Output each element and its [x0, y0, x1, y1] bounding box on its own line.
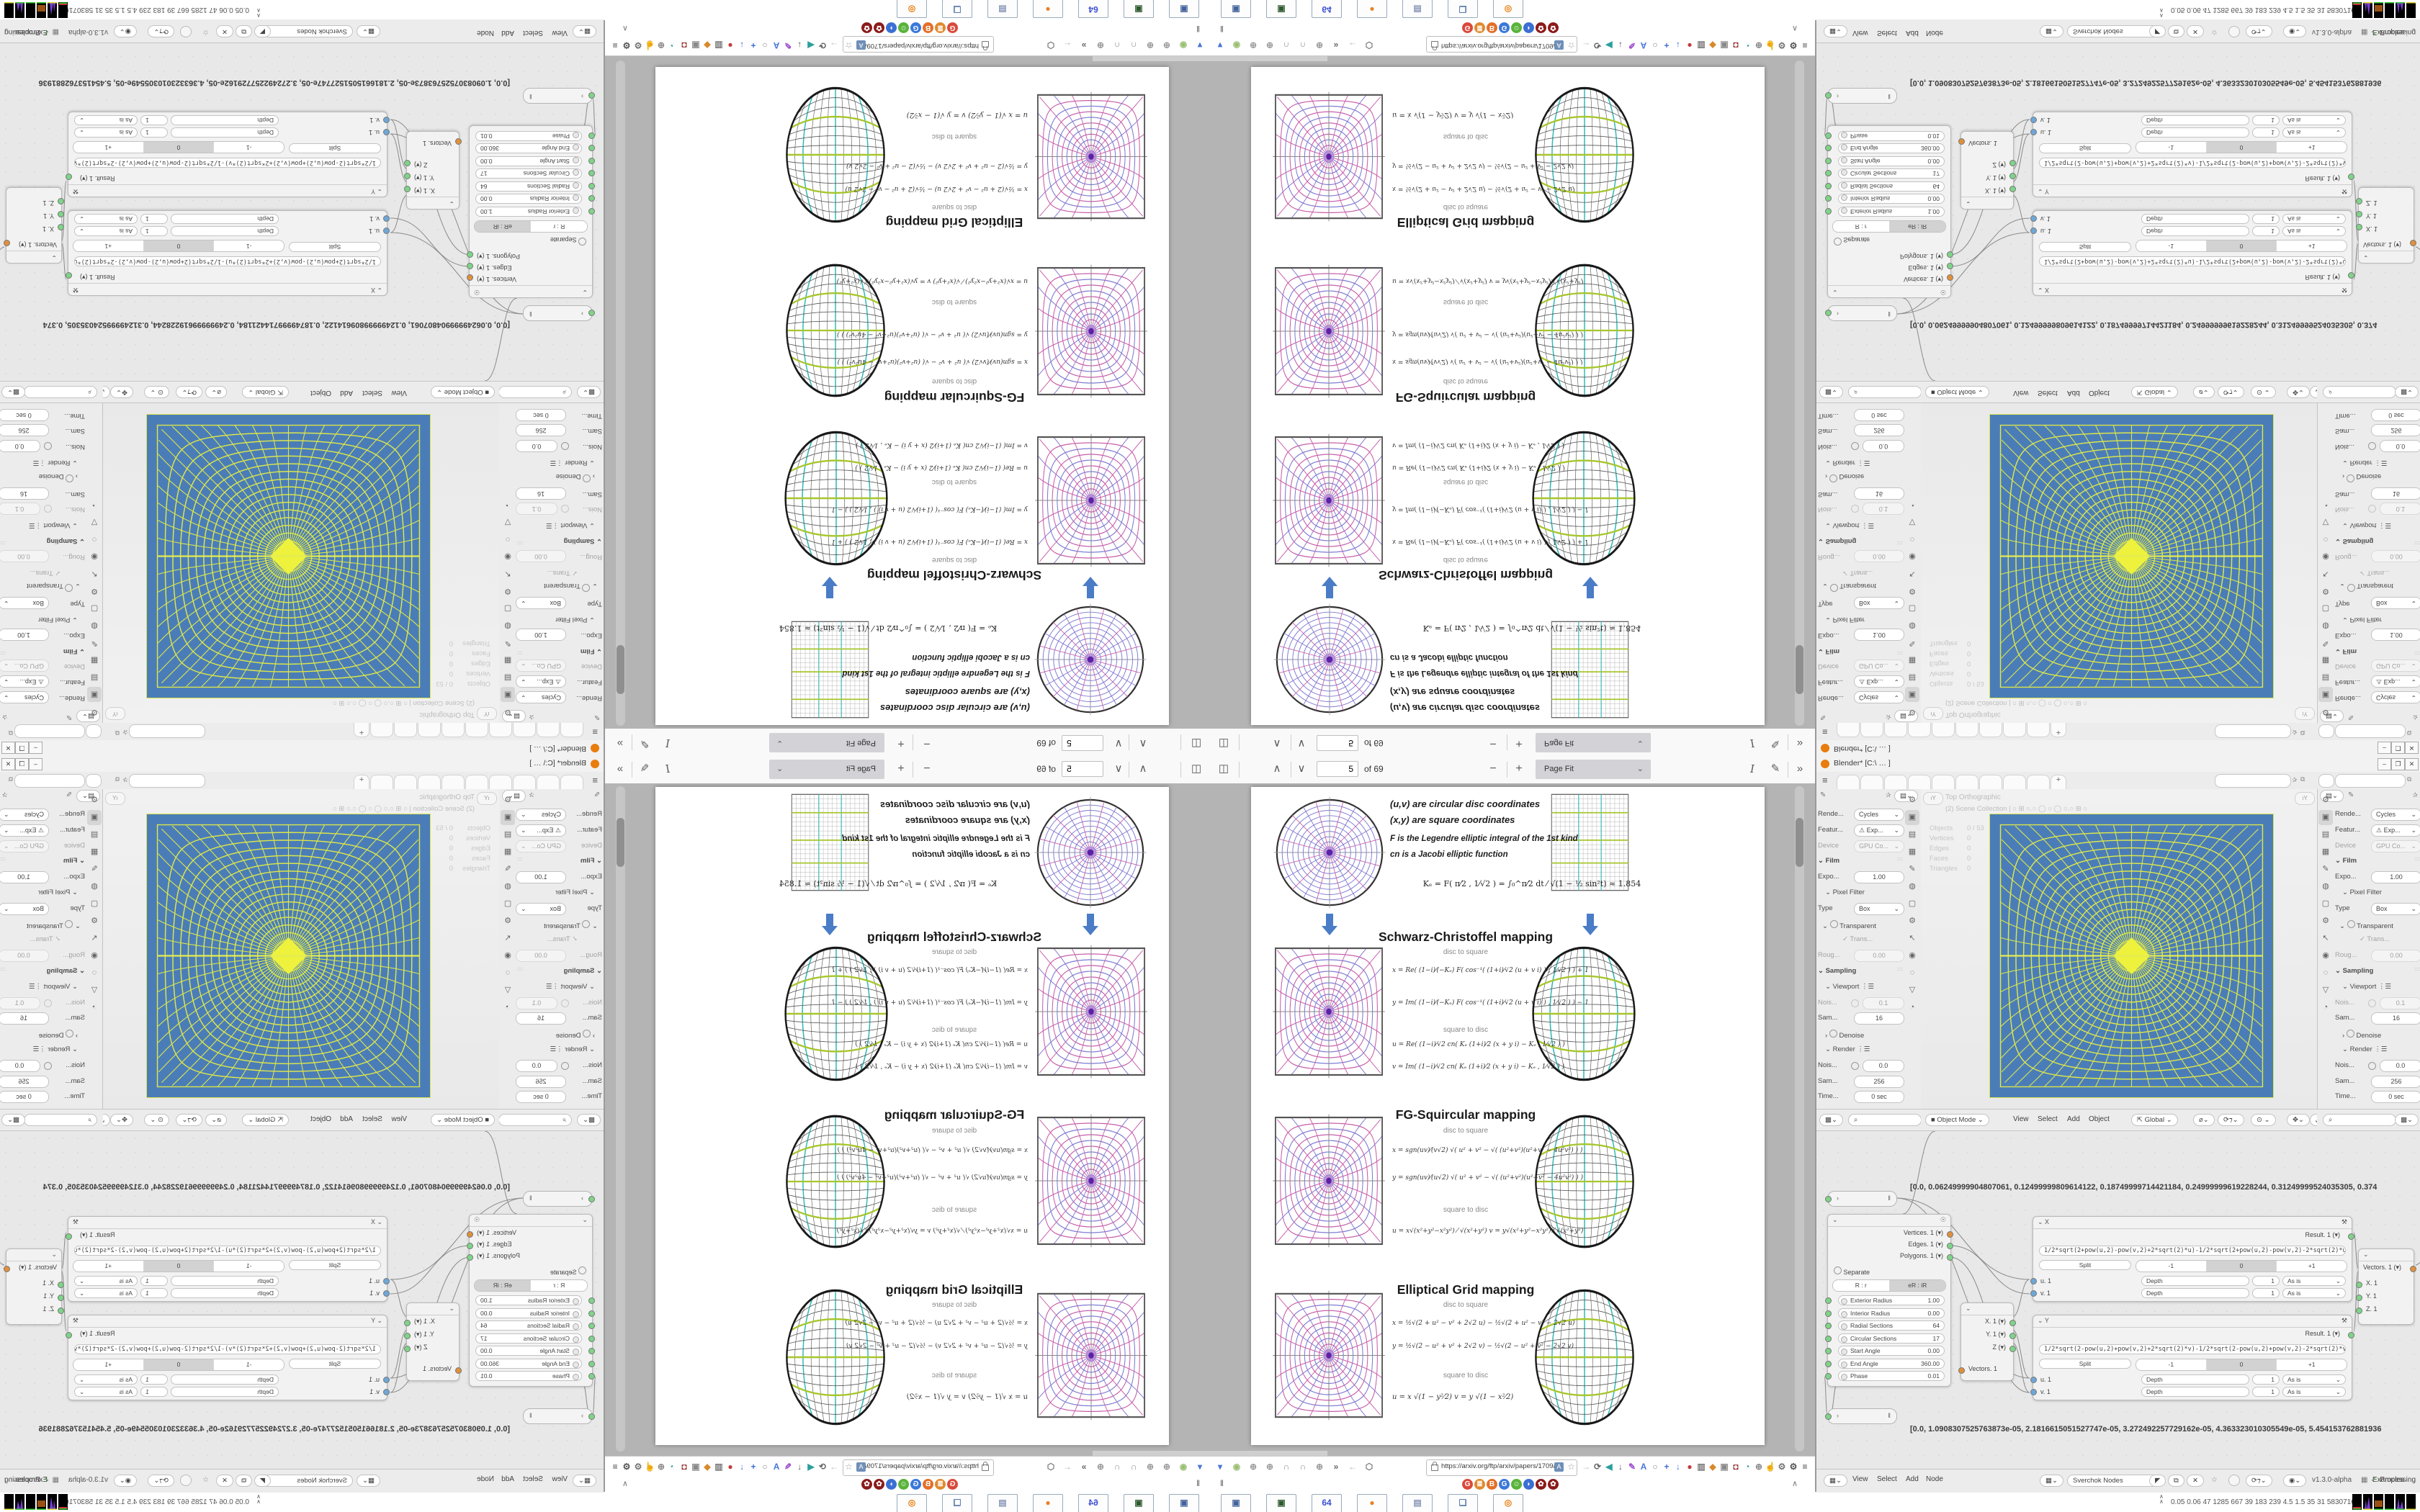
props-row-film[interactable]: ⌄ Film::::	[2335, 855, 2420, 869]
props-row-featur[interactable]: Featur...⚠ Exp... ⌄	[516, 824, 602, 838]
depth-slider[interactable]: Depth	[2141, 226, 2249, 236]
properties-tab-icon[interactable]: ✎	[87, 635, 102, 650]
props-row-featur[interactable]: Featur...⚠ Exp... ⌄	[2335, 824, 2420, 838]
formula-input[interactable]: 1/2*sqrt(2-pow(u,2)+pow(v,2)+2*sqrt(2)*v…	[2039, 1344, 2346, 1354]
props-row-device[interactable]: DeviceGPU Co... ⌄	[0, 658, 85, 672]
value-field[interactable]: 1	[2252, 214, 2280, 224]
param-slider[interactable]: Phase0.01	[475, 1371, 582, 1381]
sverchok-node-editor[interactable]: [0.0, 0.06249999904807061, 0.12499999809…	[1816, 42, 2420, 382]
props-row-denoise[interactable]: › Denoise	[2335, 1027, 2420, 1042]
properties-tab-icon[interactable]: ◔	[2318, 1000, 2333, 1015]
taskbar-app-icon[interactable]: ●	[1033, 0, 1063, 18]
wrap-option[interactable]: -1	[214, 1359, 284, 1370]
props-row-device[interactable]: DeviceGPU Co... ⌄	[1818, 840, 1904, 854]
bookmark-icon[interactable]: ✿	[861, 22, 872, 33]
menu-select[interactable]: Select	[1877, 1475, 1897, 1483]
mode-dropdown[interactable]: ■ Object Mode ⌄	[1925, 1114, 1989, 1126]
taskbar-app-icon[interactable]: 64	[1312, 0, 1342, 18]
props-row-rende[interactable]: Rende...Cycles ⌄	[1818, 808, 1904, 822]
editor-type-dropdown[interactable]: ▩⌄	[1819, 1114, 1843, 1126]
page-number-input[interactable]	[1317, 735, 1358, 751]
props-row-sam[interactable]: Sam...16	[0, 1012, 85, 1026]
toolbar-icon[interactable]: ⊕	[1312, 38, 1327, 53]
param-slider[interactable]: Start Angle0.00	[475, 156, 582, 166]
props-row-pixelfilter[interactable]: ⌄ Pixel Filter	[1818, 886, 1904, 901]
snap-dropdown[interactable]: ⟳⁊⌄	[148, 25, 174, 37]
value-field[interactable]: 1	[140, 127, 168, 138]
props-row-time[interactable]: Time...0 sec	[0, 408, 85, 422]
wrap-option[interactable]: 0	[2206, 142, 2277, 153]
props-row-type[interactable]: TypeBox ⌄	[1818, 595, 1904, 610]
bookmark-icon[interactable]: ◗	[1523, 1479, 1534, 1490]
props-row-roug[interactable]: Roug...0.00	[1818, 949, 1904, 963]
page-down-button[interactable]: ∨	[1292, 761, 1311, 778]
menu-icon[interactable]: ≡	[1822, 726, 1828, 737]
pin-icon[interactable]: ✰	[122, 728, 128, 736]
editor-type-dropdown[interactable]: ▩⌄	[2395, 1114, 2419, 1126]
toolbar-icon[interactable]: ∩	[1296, 1459, 1310, 1474]
props-row-sam[interactable]: Sam...16	[2335, 1012, 2420, 1026]
props-row-pixelfilter[interactable]: ⌄ Pixel Filter	[2335, 886, 2420, 901]
properties-tab-icon[interactable]: ◍	[501, 618, 515, 633]
wrap-option[interactable]: -1	[2136, 1359, 2206, 1370]
formula-input[interactable]: 1/2*sqrt(2+pow(u,2)-pow(v,2)+2*sqrt(2)*u…	[2039, 256, 2346, 266]
mode-option[interactable]: eR : iR	[1889, 221, 1946, 232]
toolbar-icon[interactable]: ∩	[1279, 1459, 1294, 1474]
props-row-sam[interactable]: Sam...16	[2335, 486, 2420, 500]
split-button[interactable]: Split	[289, 242, 381, 252]
taskbar-app-icon[interactable]: ◎	[897, 1494, 927, 1512]
props-row-device[interactable]: DeviceGPU Co... ⌄	[2335, 658, 2420, 672]
parent-tree-button[interactable]	[2228, 26, 2240, 37]
taskbar-app-icon[interactable]: ◎	[1493, 1494, 1523, 1512]
properties-tab-icon[interactable]: ◔	[1905, 1000, 1919, 1015]
props-row-render[interactable]: ⌄ Render ⋮☰	[0, 454, 85, 469]
collapsed-node[interactable]: ›‖	[523, 1191, 593, 1207]
props-row-pixelfilter[interactable]: ⌄ Pixel Filter	[0, 886, 85, 901]
properties-tab-icon[interactable]: ▣	[501, 687, 515, 702]
pin-icon[interactable]: ✰	[2412, 791, 2418, 799]
properties-tab-icon[interactable]: ◉	[87, 948, 102, 963]
corner-widget[interactable]: ıY	[1923, 707, 1943, 720]
reader-mode-icon[interactable]: A	[1554, 40, 1564, 50]
menu-object[interactable]: Object	[2089, 389, 2110, 397]
properties-tab-icon[interactable]: ◌	[2318, 966, 2333, 981]
properties-tab-icon[interactable]: ◌	[1905, 531, 1919, 546]
bookmark-star-icon[interactable]: ☆	[1567, 40, 1575, 50]
properties-tab-icon[interactable]: ◌	[87, 531, 102, 546]
formula-input[interactable]: 1/2*sqrt(2+pow(u,2)-pow(v,2)+2*sqrt(2)*u…	[74, 256, 381, 266]
close-button[interactable]: ✕	[2405, 742, 2419, 754]
props-row-expo[interactable]: Expo...1.00	[2335, 870, 2420, 885]
properties-tab-icon[interactable]: ▦	[501, 652, 515, 667]
props-row-time[interactable]: Time...0 sec	[1818, 1090, 1904, 1104]
corner-widget[interactable]: ıY	[1923, 792, 1943, 805]
toolbar-icon[interactable]: ≡	[608, 1459, 622, 1474]
wrap-option[interactable]: +1	[2276, 1359, 2347, 1370]
menu-view[interactable]: View	[1852, 1475, 1868, 1483]
properties-tab-icon[interactable]: ▤	[87, 670, 102, 685]
page-down-button[interactable]: ∨	[1292, 734, 1311, 751]
properties-tab-icon[interactable]: ▦	[2318, 652, 2333, 667]
properties-tab-icon[interactable]: ▦	[87, 652, 102, 667]
wrap-option[interactable]: +1	[73, 142, 144, 153]
toolbar-icon[interactable]: ≡	[1798, 38, 1812, 53]
zoom-select[interactable]: Page Fit ⌄	[769, 733, 884, 752]
vector-out-node[interactable]: ⌄ Vectors. 1 (▾)X. 1Y. 1Z. 1	[2358, 187, 2414, 264]
toolbar-icon[interactable]: ∩	[1126, 38, 1141, 53]
taskbar-app-icon[interactable]: 64	[1078, 0, 1108, 18]
wrap-option[interactable]: 0	[2206, 240, 2277, 251]
props-row-film[interactable]: ⌄ Film::::	[2335, 643, 2420, 657]
scrollbar[interactable]	[1795, 786, 1804, 1452]
fake-user-shield-button[interactable]: ◤	[2149, 1475, 2166, 1487]
add-workspace-button[interactable]: +	[354, 722, 369, 737]
sverchok-node-editor[interactable]: [0.0, 0.06249999904807061, 0.12499999809…	[0, 1130, 604, 1470]
props-row-viewport[interactable]: ⌄ Viewport ⋮☰	[2335, 517, 2420, 531]
toolbar-icon[interactable]: ←	[1060, 38, 1075, 53]
value-field[interactable]: 1	[2252, 1276, 2280, 1286]
properties-tab-icon[interactable]: ◔	[501, 1000, 515, 1015]
pin-icon[interactable]: ✰	[2, 713, 8, 721]
taskbar-app-icon[interactable]: ▤	[987, 1494, 1018, 1512]
param-slider[interactable]: Exterior Radius1.00	[1838, 207, 1945, 217]
pin-icon[interactable]: ✰	[1886, 791, 1891, 799]
toolbar-icon[interactable]: ⊕	[1312, 1459, 1327, 1474]
scene-name-field[interactable]	[2215, 724, 2291, 738]
pin-icon[interactable]: ✰	[2292, 728, 2298, 736]
value-field[interactable]: 1	[2252, 226, 2280, 236]
mode-option[interactable]: eR : iR	[475, 221, 532, 232]
bookmark-star-icon[interactable]: ☆	[845, 40, 853, 50]
workspace-tab[interactable]	[2003, 722, 2026, 737]
scene-name-field[interactable]	[129, 724, 205, 738]
text-select-tool-icon[interactable]: I	[658, 734, 677, 751]
props-row-sam[interactable]: Sam...16	[1818, 486, 1904, 500]
props-row-sam[interactable]: Sam...256	[1818, 423, 1904, 437]
props-row-film[interactable]: ⌄ Film::::	[0, 643, 85, 657]
properties-tab-icon[interactable]: ▽	[501, 514, 515, 529]
maximize-button[interactable]: ❐	[2391, 742, 2405, 754]
scrollbar[interactable]	[616, 60, 625, 726]
param-slider[interactable]: Radial Sections64	[1838, 181, 1945, 192]
sidebar-toggle-icon[interactable]: ◫	[1187, 761, 1206, 778]
depth-slider[interactable]: Depth	[2141, 127, 2249, 138]
value-field[interactable]: 1	[2252, 127, 2280, 138]
menu-select[interactable]: Select	[2038, 1115, 2058, 1123]
vector-in-node[interactable]: ⌄ X. 1 (▾)Y. 1 (▾)Z (▾)Vectors. 1	[1960, 131, 2014, 210]
properties-tab-icon[interactable]: ◍	[1905, 879, 1919, 894]
scrollbar[interactable]	[616, 786, 625, 1452]
mode-option[interactable]: R : r	[1833, 1280, 1889, 1291]
overlay-dropdown[interactable]: ◉⌄	[114, 25, 137, 37]
toolbar-icon[interactable]: ◉	[1229, 1459, 1244, 1474]
props-row-rende[interactable]: Rende...Cycles ⌄	[0, 808, 85, 822]
view-layer-icon-dropdown[interactable]	[2318, 774, 2334, 788]
value-field[interactable]: 1	[2252, 115, 2280, 125]
workspace-tab[interactable]	[1979, 722, 2002, 737]
vector-out-node[interactable]: ⌄ Vectors. 1 (▾)X. 1Y. 1Z. 1	[6, 1248, 62, 1325]
param-slider[interactable]: End Angle360.00	[1838, 144, 1945, 154]
unlink-button[interactable]: ✕	[216, 25, 233, 37]
editor-type-dropdown[interactable]: ▩⌄	[577, 386, 601, 398]
sverchok-node-editor[interactable]: [0.0, 0.06249999904807061, 0.12499999809…	[1816, 1130, 2420, 1470]
overlay-dropdown[interactable]: ◉⌄	[2283, 25, 2306, 37]
taskbar-app-icon[interactable]: ●	[1033, 1494, 1063, 1512]
value-field[interactable]: 1	[140, 1288, 168, 1298]
taskbar-app-icon[interactable]: ❏	[1448, 1494, 1478, 1512]
collapsed-node[interactable]: ›‖	[1827, 88, 1897, 104]
vector-in-node[interactable]: ⌄ X. 1 (▾)Y. 1 (▾)Z (▾)Vectors. 1	[1960, 1302, 2014, 1381]
minimize-button[interactable]: –	[2378, 742, 2391, 754]
properties-tab-icon[interactable]: ◍	[501, 879, 515, 894]
separate-toggle[interactable]: Separate	[1834, 1266, 1870, 1276]
copy-button[interactable]: ⧉	[236, 1475, 252, 1487]
props-row-expo[interactable]: Expo...1.00	[1818, 870, 1904, 885]
zoom-out-button[interactable]: −	[918, 761, 936, 778]
props-row-nois[interactable]: Nois...0.1	[516, 501, 602, 516]
props-row-pixelfilter[interactable]: ⌄ Pixel Filter	[1818, 611, 1904, 626]
minimize-button[interactable]: –	[2378, 758, 2391, 770]
unlink-button[interactable]: ✕	[2187, 25, 2204, 37]
workspace-tab[interactable]	[560, 775, 583, 790]
zoom-in-button[interactable]: +	[1510, 761, 1528, 778]
props-row-transparent[interactable]: ⌄ Transparent	[0, 580, 85, 594]
param-slider[interactable]: Start Angle0.00	[475, 1346, 582, 1356]
formula-input[interactable]: 1/2*sqrt(2-pow(u,2)+pow(v,2)+2*sqrt(2)*v…	[74, 1344, 381, 1354]
formula-node-x[interactable]: ⌄ X⚒Result. 1 (▾)1/2*sqrt(2+pow(u,2)-pow…	[2033, 1216, 2352, 1302]
props-row-nois[interactable]: Nois...0.0	[1818, 438, 1904, 453]
vector-in-node[interactable]: ⌄ X. 1 (▾)Y. 1 (▾)Z (▾)Vectors. 1	[406, 131, 460, 210]
param-slider[interactable]: Start Angle0.00	[1838, 1346, 1945, 1356]
menu-icon[interactable]: ≡	[592, 775, 598, 786]
props-row-trans[interactable]: ✓ Trans...	[516, 564, 602, 579]
workspace-tab[interactable]	[370, 775, 393, 790]
props-row-featur[interactable]: Featur...⚠ Exp... ⌄	[2335, 674, 2420, 688]
menu-add[interactable]: Add	[1906, 1475, 1919, 1483]
editor-type-dropdown[interactable]: ▩⌄	[2395, 386, 2419, 398]
ring-node[interactable]: ⌄☉ Vertices. 1 (▾) Edges. 1 (▾) Polygons…	[1827, 125, 1951, 298]
param-slider[interactable]: Phase0.01	[475, 131, 582, 141]
processing-toggle[interactable]: Processing	[2380, 28, 2416, 36]
param-slider[interactable]: Interior Radius0.00	[475, 194, 582, 204]
props-row-trans[interactable]: ✓ Trans...	[0, 564, 85, 579]
bookmark-icon[interactable]: ◗	[886, 1479, 897, 1490]
node-tree-name-field[interactable]: Sverchok Nodes	[262, 1475, 353, 1487]
bookmark-icon[interactable]: ≣	[935, 1479, 946, 1490]
zoom-select[interactable]: Page Fit ⌄	[1536, 760, 1651, 779]
props-row-trans[interactable]: ✓ Trans...	[1818, 933, 1904, 948]
properties-tab-icon[interactable]: ✎	[2318, 862, 2333, 877]
bookmark-icon[interactable]: B	[923, 1479, 933, 1490]
blender-titlebar[interactable]: Blender* [C:\ … ] – ❐ ✕	[1816, 756, 2420, 773]
separate-toggle[interactable]: Separate	[550, 236, 586, 246]
bookmark-icon[interactable]: ✿	[1536, 1479, 1546, 1490]
search-field[interactable]: ⌕	[498, 1114, 572, 1126]
properties-tab-icon[interactable]: ▣	[87, 687, 102, 702]
workspace-tab[interactable]	[1979, 775, 2002, 790]
add-workspace-button[interactable]: +	[2051, 722, 2066, 737]
properties-tab-icon[interactable]: ◉	[87, 549, 102, 564]
workspace-tab[interactable]	[1932, 775, 1955, 790]
toolbar-icon[interactable]: ⬡	[1044, 38, 1058, 53]
pin-icon[interactable]: ✰	[1886, 713, 1891, 721]
props-row-sampling[interactable]: ⌄ Sampling::::	[1818, 533, 1904, 547]
workspace-tab[interactable]	[513, 722, 536, 737]
toolbar-icon[interactable]: »	[1077, 38, 1091, 53]
properties-tab-icon[interactable]: ◔	[87, 497, 102, 512]
menu-node[interactable]: Node	[477, 1475, 494, 1483]
copy-icon[interactable]: ⧉	[2300, 775, 2305, 783]
properties-tab-icon[interactable]: ⚙	[501, 914, 515, 929]
menu-view[interactable]: View	[2013, 1115, 2029, 1123]
properties-tab-icon[interactable]: ⚙	[87, 914, 102, 929]
gear-icon[interactable]: ☉	[1940, 288, 1946, 296]
props-row-sam[interactable]: Sam...256	[516, 1075, 602, 1089]
depth-slider[interactable]: Depth	[2141, 115, 2249, 125]
tree-type-dropdown[interactable]: ▦⌄	[357, 25, 380, 37]
menu-node[interactable]: Node	[1926, 29, 1943, 37]
toolbar-icon[interactable]: ⊕	[1263, 38, 1277, 53]
props-row-nois[interactable]: Nois...0.0	[516, 1059, 602, 1074]
wrap-option[interactable]: +1	[73, 1261, 144, 1272]
toolbar-overflow-button[interactable]: »	[611, 734, 629, 751]
props-row-pixelfilter[interactable]: ⌄ Pixel Filter	[516, 886, 602, 901]
bookmark-icon[interactable]: ✿	[874, 22, 884, 33]
toolbar-icon[interactable]: ⊕	[1143, 1459, 1157, 1474]
workspace-tab[interactable]	[2027, 775, 2050, 790]
props-row-sampling[interactable]: ⌄ Sampling::::	[0, 965, 85, 979]
props-row-sampling[interactable]: ⌄ Sampling::::	[516, 533, 602, 547]
props-row-featur[interactable]: Featur...⚠ Exp... ⌄	[0, 674, 85, 688]
properties-tab-icon[interactable]: ⚙	[2318, 704, 2333, 719]
workspace-tab[interactable]	[489, 775, 512, 790]
props-row-film[interactable]: ⌄ Film::::	[0, 855, 85, 869]
tree-type-dropdown[interactable]: ▦⌄	[2040, 25, 2063, 37]
search-field[interactable]: ⌕	[24, 386, 97, 398]
value-field[interactable]: 1	[140, 214, 168, 224]
view-layer-icon-dropdown[interactable]	[86, 724, 102, 738]
depth-slider[interactable]: Depth	[2141, 1276, 2249, 1286]
editor-type-dropdown[interactable]: ▦⌄	[573, 25, 596, 37]
split-button[interactable]: Split	[2039, 242, 2131, 252]
sverchok-node-editor[interactable]: [0.0, 0.06249999904807061, 0.12499999809…	[0, 42, 604, 382]
workspace-tab[interactable]	[1884, 722, 1907, 737]
menu-select[interactable]: Select	[2038, 389, 2058, 397]
props-row-denoise[interactable]: › Denoise	[0, 470, 85, 485]
mode-option[interactable]: R : r	[532, 1280, 588, 1291]
props-row-nois[interactable]: Nois...0.1	[0, 501, 85, 516]
properties-tab-icon[interactable]: ◍	[87, 879, 102, 894]
props-row-device[interactable]: DeviceGPU Co... ⌄	[0, 840, 85, 854]
props-row-nois[interactable]: Nois...0.0	[516, 438, 602, 453]
blender-titlebar[interactable]: Blender* [C:\ … ] – ❐ ✕	[0, 739, 604, 756]
depth-slider[interactable]: Depth	[171, 1374, 279, 1385]
properties-tab-icon[interactable]: ↖	[87, 931, 102, 946]
menu-view[interactable]: View	[392, 1115, 408, 1123]
page-up-button[interactable]: ∧	[1268, 734, 1286, 751]
maximize-button[interactable]: ❐	[15, 758, 29, 770]
pin-star-icon[interactable]: ☆	[2211, 1476, 2218, 1484]
props-row-trans[interactable]: ✓ Trans...	[2335, 564, 2420, 579]
bookmark-icon[interactable]: ☺	[1511, 1479, 1522, 1490]
processing-toggle[interactable]: Processing	[4, 1476, 40, 1484]
menu-select[interactable]: Select	[523, 29, 543, 37]
toolbar-icon[interactable]: ∩	[1279, 38, 1294, 53]
formula-node-x[interactable]: ⌄ X⚒Result. 1 (▾)1/2*sqrt(2+pow(u,2)-pow…	[68, 1216, 387, 1302]
properties-tab-icon[interactable]: ⚙	[87, 793, 102, 808]
vector-out-node[interactable]: ⌄ Vectors. 1 (▾)X. 1Y. 1Z. 1	[6, 187, 62, 264]
param-slider[interactable]: Interior Radius0.00	[1838, 194, 1945, 204]
properties-tab-icon[interactable]: ▤	[1905, 827, 1919, 842]
param-slider[interactable]: Radial Sections64	[475, 181, 582, 192]
menu-select[interactable]: Select	[523, 1475, 543, 1483]
props-row-sam[interactable]: Sam...256	[2335, 423, 2420, 437]
props-row-denoise[interactable]: › Denoise	[1818, 1027, 1904, 1042]
workspace-tab[interactable]	[442, 722, 465, 737]
props-row-roug[interactable]: Roug...0.00	[0, 949, 85, 963]
zoom-in-button[interactable]: +	[892, 761, 910, 778]
wrap-option[interactable]: 0	[144, 1359, 215, 1370]
properties-tab-icon[interactable]: ▤	[501, 670, 515, 685]
properties-tab-icon[interactable]: ▢	[1905, 600, 1919, 616]
props-row-render[interactable]: ⌄ Render ⋮☰	[1818, 454, 1904, 469]
search-field[interactable]: ⌕	[2323, 386, 2396, 398]
mode-option[interactable]: R : r	[1833, 221, 1889, 232]
view-layer-icon-dropdown[interactable]	[2318, 724, 2334, 738]
props-row-roug[interactable]: Roug...0.00	[1818, 549, 1904, 563]
snap-toggle[interactable]: ⌀⌄	[205, 1114, 227, 1126]
toolbar-icon[interactable]: ⊕	[1246, 1459, 1260, 1474]
reader-mode-icon[interactable]: A	[856, 40, 866, 50]
param-slider[interactable]: Exterior Radius1.00	[475, 207, 582, 217]
bookmark-icon[interactable]: ◗	[886, 22, 897, 33]
props-row-rende[interactable]: Rende...Cycles ⌄	[2335, 808, 2420, 822]
viewport-3d[interactable]: ıY ıY Top Orthographic (2) Scene Collect…	[103, 403, 499, 723]
wrap-dropdown[interactable]: As is ⌄	[2282, 1288, 2346, 1298]
props-row-rende[interactable]: Rende...Cycles ⌄	[0, 690, 85, 704]
overlay-dropdown[interactable]: ◉⌄	[2283, 1475, 2306, 1487]
properties-tab-icon[interactable]: ◍	[1905, 618, 1919, 633]
menu-icon[interactable]: ≡	[592, 726, 598, 737]
props-row-sam[interactable]: Sam...256	[0, 423, 85, 437]
taskbar-app-icon[interactable]: ◎	[897, 0, 927, 18]
props-row-viewport[interactable]: ⌄ Viewport ⋮☰	[1818, 517, 1904, 531]
wrap-option[interactable]: -1	[2136, 142, 2206, 153]
page-up-button[interactable]: ∧	[1268, 761, 1286, 778]
param-slider[interactable]: Circular Sections17	[1838, 169, 1945, 179]
value-field[interactable]: 1	[140, 226, 168, 236]
collapse-icon[interactable]: ∧	[622, 1479, 628, 1488]
zoom-select[interactable]: Page Fit ⌄	[1536, 733, 1651, 752]
view-layer-field[interactable]	[14, 724, 85, 738]
bookmark-icon[interactable]: ◗	[1523, 22, 1534, 33]
properties-tab-icon[interactable]: ⚙	[87, 583, 102, 598]
properties-tab-icon[interactable]: ✎	[501, 862, 515, 877]
taskbar-app-icon[interactable]: 64	[1078, 1494, 1108, 1512]
taskbar-app-icon[interactable]: ●	[1357, 1494, 1387, 1512]
props-row-nois[interactable]: Nois...0.0	[1818, 1059, 1904, 1074]
menu-object[interactable]: Object	[310, 389, 331, 397]
taskbar-app-icon[interactable]: ▤	[987, 0, 1018, 18]
param-slider[interactable]: Circular Sections17	[475, 1333, 582, 1344]
props-row-featur[interactable]: Featur...⚠ Exp... ⌄	[516, 674, 602, 688]
wrap-option[interactable]: +1	[2276, 142, 2347, 153]
copy-icon[interactable]: ⧉	[2300, 729, 2305, 737]
url-bar[interactable]: https://arxiv.org/ftp/arxiv/papers/1709/…	[843, 36, 994, 53]
fake-user-shield-button[interactable]: ◤	[254, 1475, 271, 1487]
props-row-film[interactable]: ⌄ Film::::	[1818, 855, 1904, 869]
